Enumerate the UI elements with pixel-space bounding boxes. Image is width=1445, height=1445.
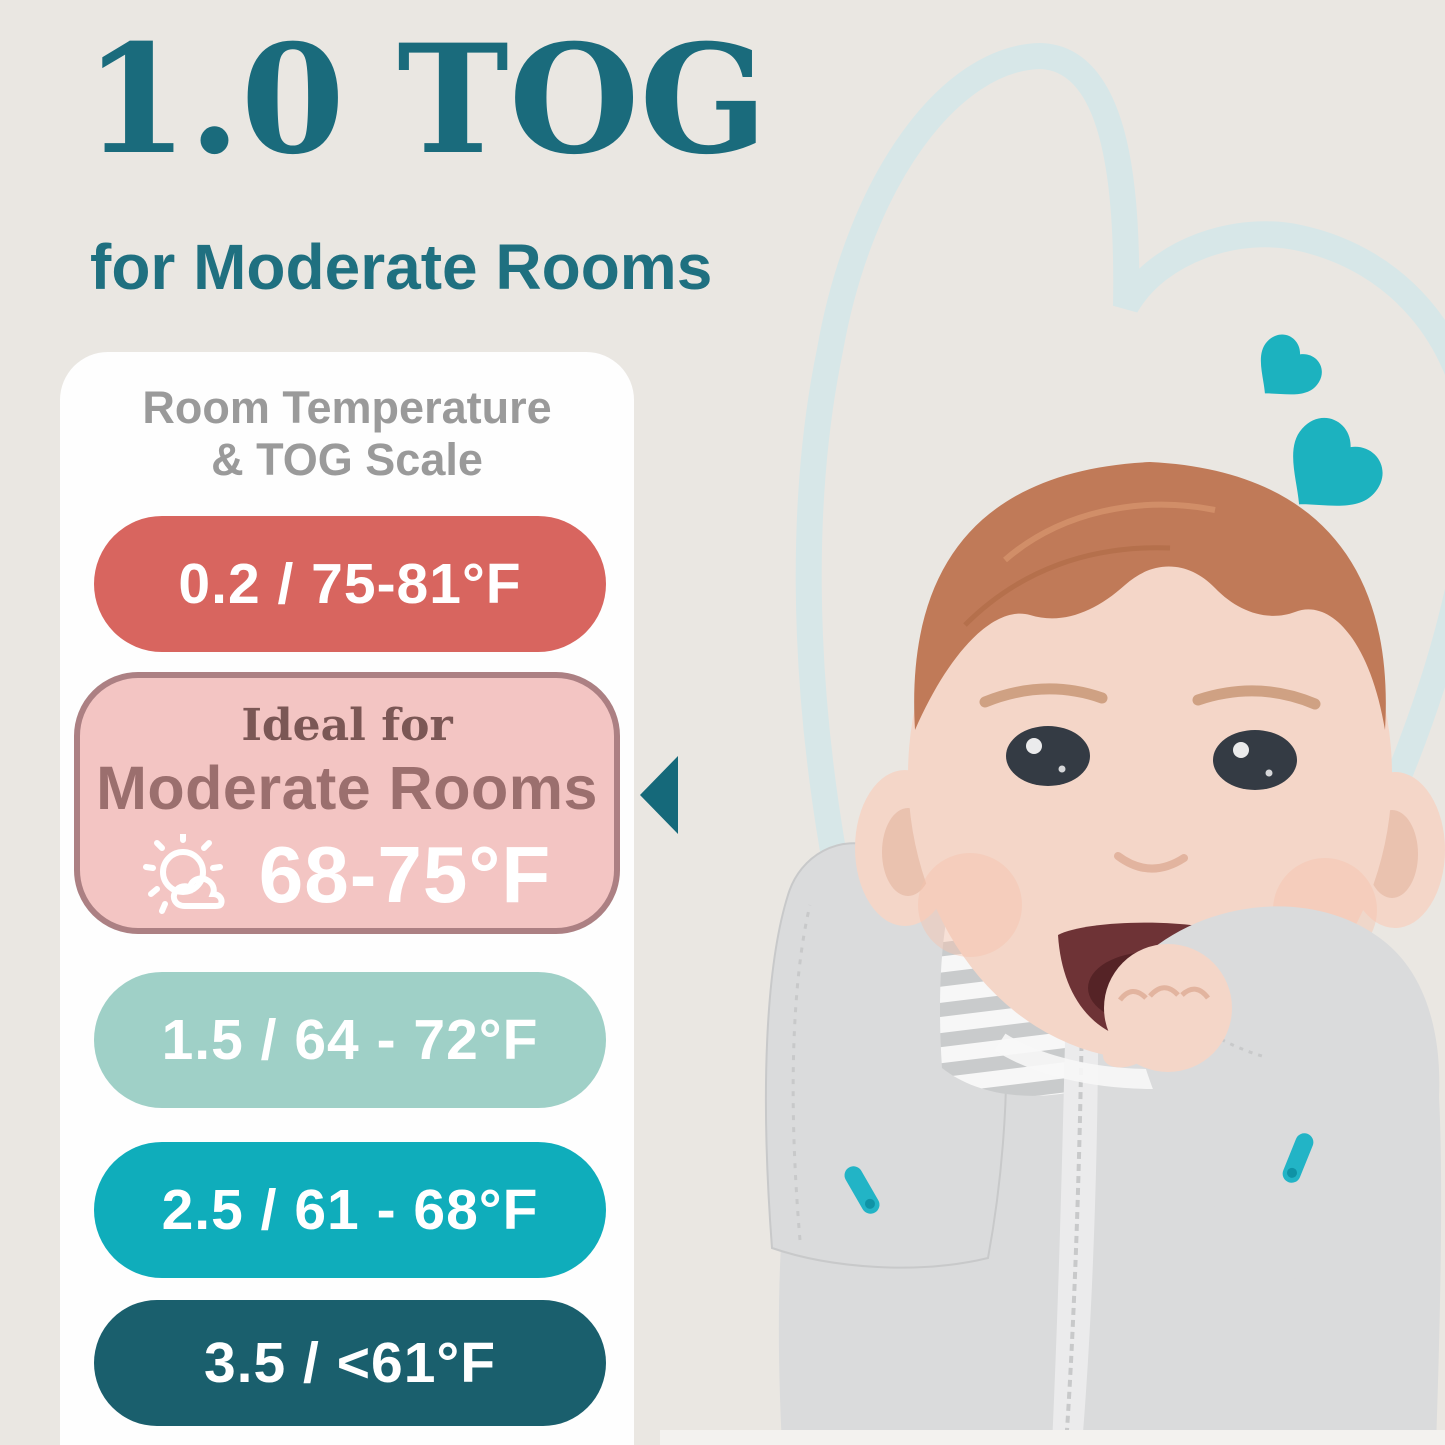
ideal-for-label: Ideal for: [241, 700, 452, 751]
ideal-temp-label: 68-75°F: [259, 829, 551, 921]
baby-figure: [766, 462, 1445, 1445]
tog-row-label: 0.2 / 75-81°F: [178, 551, 521, 617]
tog-row-0-2: 0.2 / 75-81°F: [94, 516, 606, 652]
card-heading: Room Temperature & TOG Scale: [60, 382, 634, 486]
swaddle-torso: [779, 908, 1441, 1445]
swaddle-left-wing: [766, 843, 1007, 1267]
baby-head: [855, 462, 1445, 1060]
baby-hair: [914, 462, 1386, 730]
sun-behind-cloud-icon: [143, 834, 243, 916]
collar-trim: [1000, 1042, 1300, 1079]
page-title: 1.0 TOG: [84, 22, 768, 180]
ideal-row-pointer-icon: [638, 754, 680, 836]
tog-scale-card: Room Temperature & TOG Scale 0.2 / 75-81…: [60, 352, 634, 1445]
card-heading-line1: Room Temperature: [60, 382, 634, 434]
heart-icon-large: [1263, 407, 1394, 537]
tog-row-2-5: 2.5 / 61 - 68°F: [94, 1142, 606, 1278]
tog-row-label: 3.5 / <61°F: [204, 1330, 496, 1396]
baby-eyes: [1006, 726, 1297, 790]
heart-outline-icon: [809, 56, 1445, 1360]
product-infographic: 1.0 TOG for Moderate Rooms: [0, 0, 1445, 1445]
baby-hand: [1098, 944, 1232, 1074]
swaddle-right-arm: [1133, 906, 1439, 1285]
tog-row-3-5: 3.5 / <61°F: [94, 1300, 606, 1426]
heart-icon-small: [1240, 327, 1329, 416]
zipper: [1052, 908, 1098, 1445]
surface-band: [660, 1430, 1445, 1445]
zipper-pull-left-icon: [841, 1163, 883, 1217]
tog-row-label: 1.5 / 64 - 72°F: [162, 1007, 539, 1073]
stripe-panel: [940, 894, 1072, 1096]
tog-row-1-5: 1.5 / 64 - 72°F: [94, 972, 606, 1108]
ideal-room-label: Moderate Rooms: [96, 753, 598, 823]
tog-row-label: 2.5 / 61 - 68°F: [162, 1177, 539, 1243]
baby-mouth: [1058, 923, 1240, 1042]
zipper-pull-right-icon: [1280, 1131, 1316, 1186]
tog-row-ideal: Ideal for Moderate Rooms 68-75°F: [74, 672, 620, 934]
card-heading-line2: & TOG Scale: [60, 434, 634, 486]
page-subtitle: for Moderate Rooms: [90, 230, 712, 304]
